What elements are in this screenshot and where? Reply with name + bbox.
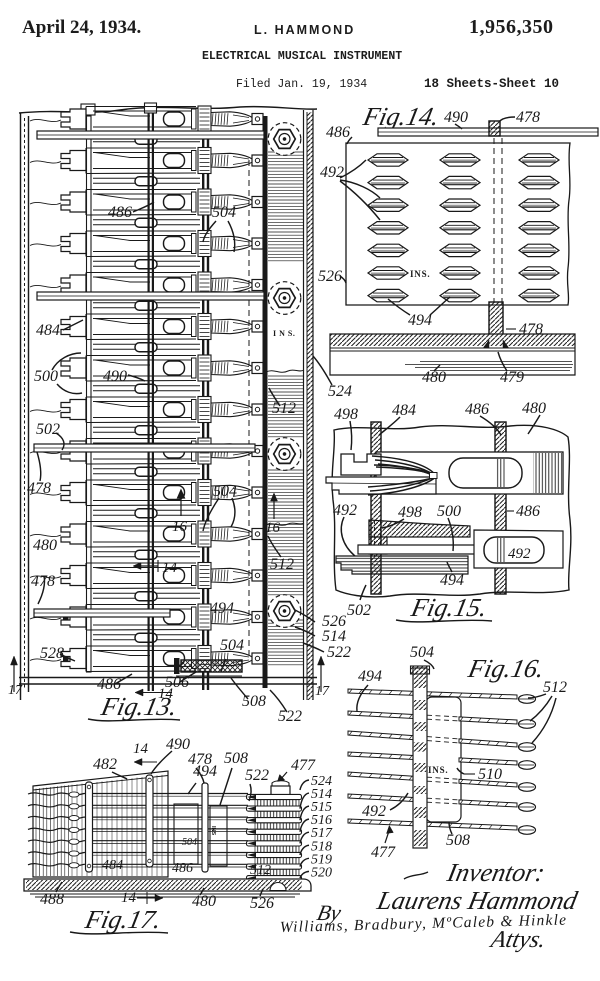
svg-text:482: 482 — [93, 756, 117, 773]
svg-text:486: 486 — [465, 401, 489, 418]
svg-text:492: 492 — [508, 546, 531, 562]
svg-text:498: 498 — [398, 504, 422, 521]
svg-text:524: 524 — [328, 383, 352, 400]
svg-text:504: 504 — [212, 204, 236, 221]
svg-text:510: 510 — [478, 766, 502, 783]
svg-text:17: 17 — [315, 684, 330, 699]
svg-text:477: 477 — [291, 757, 316, 774]
svg-text:498: 498 — [334, 406, 358, 423]
svg-text:14: 14 — [162, 560, 178, 576]
svg-text:INS: INS — [210, 826, 216, 836]
svg-text:Laurens Hammond: Laurens Hammond — [374, 886, 581, 915]
svg-text:488: 488 — [40, 891, 64, 908]
svg-text:514: 514 — [322, 628, 346, 645]
svg-text:520: 520 — [311, 865, 332, 880]
svg-text:478: 478 — [31, 573, 55, 590]
svg-text:512: 512 — [543, 679, 567, 696]
svg-text:522: 522 — [278, 708, 302, 725]
svg-text:477: 477 — [371, 844, 396, 861]
svg-text:478: 478 — [519, 321, 543, 338]
svg-text:484: 484 — [392, 402, 416, 419]
svg-text:494: 494 — [440, 572, 464, 589]
svg-text:522: 522 — [245, 767, 269, 784]
svg-text:490: 490 — [166, 736, 190, 753]
svg-text:494: 494 — [358, 668, 382, 685]
svg-text:526: 526 — [250, 895, 274, 912]
svg-text:490: 490 — [444, 109, 468, 126]
svg-text:502: 502 — [36, 421, 60, 438]
svg-text:508: 508 — [446, 832, 470, 849]
svg-text:506: 506 — [165, 674, 189, 691]
svg-text:478: 478 — [516, 109, 540, 126]
svg-text:504: 504 — [213, 483, 237, 500]
svg-text:Inventor:: Inventor: — [444, 858, 548, 887]
svg-text:492: 492 — [333, 502, 357, 519]
svg-text:Fig.14.: Fig.14. — [360, 102, 442, 131]
svg-text:500: 500 — [34, 368, 58, 385]
svg-text:Fig.15.: Fig.15. — [408, 593, 490, 622]
svg-text:478: 478 — [27, 480, 51, 497]
svg-text:480: 480 — [33, 537, 57, 554]
svg-text:16: 16 — [172, 519, 188, 535]
svg-text:Fig.16.: Fig.16. — [465, 654, 547, 683]
svg-text:484: 484 — [36, 322, 60, 339]
svg-text:480: 480 — [422, 369, 446, 386]
svg-text:512: 512 — [270, 556, 294, 573]
svg-text:504: 504 — [410, 644, 434, 661]
svg-text:INS.: INS. — [428, 765, 448, 775]
svg-text:494: 494 — [210, 600, 234, 617]
svg-text:486: 486 — [326, 124, 350, 141]
svg-text:14: 14 — [133, 741, 149, 757]
svg-text:INS.: INS. — [410, 269, 430, 279]
svg-text:508: 508 — [224, 750, 248, 767]
svg-text:512: 512 — [272, 400, 296, 417]
svg-text:480: 480 — [192, 893, 216, 910]
svg-text:522: 522 — [327, 644, 351, 661]
svg-text:492: 492 — [362, 803, 386, 820]
svg-text:Fig.13.: Fig.13. — [98, 692, 180, 721]
svg-text:480: 480 — [522, 400, 546, 417]
svg-text:486: 486 — [108, 204, 132, 221]
svg-text:494: 494 — [193, 763, 217, 780]
svg-text:502: 502 — [347, 602, 371, 619]
svg-text:512: 512 — [250, 863, 271, 878]
svg-text:494: 494 — [408, 312, 432, 329]
svg-text:504: 504 — [220, 637, 244, 654]
svg-text:I N S.: I N S. — [273, 329, 295, 338]
svg-text:486: 486 — [97, 676, 121, 693]
svg-text:Fig.17.: Fig.17. — [82, 905, 164, 934]
svg-text:504: 504 — [182, 837, 197, 848]
svg-text:484: 484 — [102, 858, 123, 873]
svg-text:14: 14 — [121, 890, 137, 906]
svg-text:526: 526 — [318, 268, 342, 285]
svg-text:479: 479 — [500, 369, 524, 386]
svg-text:Attys.: Attys. — [487, 926, 549, 953]
svg-text:490: 490 — [103, 368, 127, 385]
svg-text:17: 17 — [8, 683, 23, 698]
svg-text:486: 486 — [172, 861, 193, 876]
svg-text:16: 16 — [265, 520, 281, 536]
svg-text:500: 500 — [437, 503, 461, 520]
svg-text:486: 486 — [516, 503, 540, 520]
